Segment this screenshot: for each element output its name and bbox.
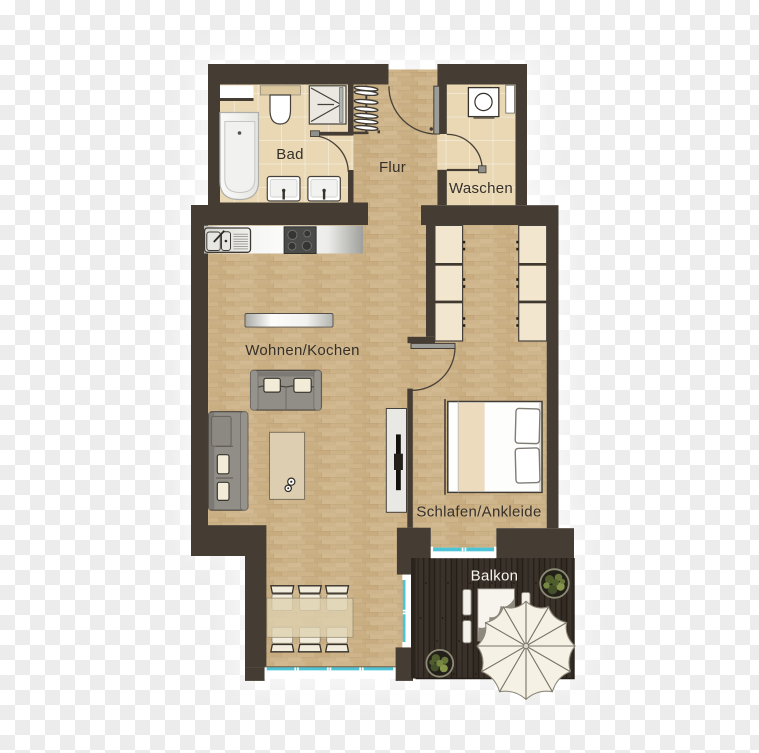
svg-text:Bad: Bad xyxy=(276,146,304,163)
svg-text:Waschen: Waschen xyxy=(449,180,513,197)
svg-text:Balkon: Balkon xyxy=(471,568,519,585)
svg-text:Schlafen/Ankleide: Schlafen/Ankleide xyxy=(416,504,541,521)
svg-text:Wohnen/Kochen: Wohnen/Kochen xyxy=(245,342,360,359)
svg-text:Flur: Flur xyxy=(379,159,406,176)
